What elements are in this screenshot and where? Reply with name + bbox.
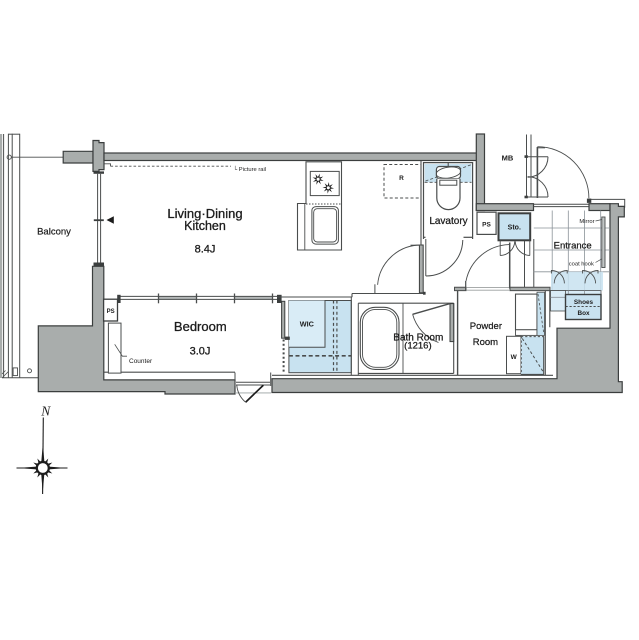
svg-text:Kitchen: Kitchen [184, 219, 226, 233]
svg-text:PS: PS [107, 309, 115, 315]
svg-text:N: N [40, 404, 51, 419]
svg-text:Entrance: Entrance [554, 240, 592, 251]
svg-text:Mirror: Mirror [579, 219, 594, 225]
svg-text:Lavatory: Lavatory [429, 216, 467, 227]
svg-text:W: W [511, 354, 518, 361]
svg-text:R: R [399, 175, 404, 182]
svg-text:Room: Room [473, 337, 498, 348]
svg-text:WIC: WIC [300, 320, 315, 329]
svg-text:Shoes: Shoes [574, 299, 594, 306]
svg-text:PS: PS [482, 222, 491, 229]
svg-text:coat hook: coat hook [569, 261, 594, 267]
svg-text:3.0J: 3.0J [190, 345, 211, 357]
svg-text:MB: MB [502, 154, 514, 163]
svg-text:(1216): (1216) [404, 340, 431, 351]
svg-text:Balcony: Balcony [37, 226, 71, 237]
svg-text:Bedroom: Bedroom [174, 319, 227, 334]
svg-text:Box: Box [577, 310, 590, 317]
svg-text:Sto.: Sto. [508, 224, 521, 231]
svg-text:Powder: Powder [470, 321, 502, 332]
svg-text:└ Picture rail: └ Picture rail [233, 165, 266, 173]
svg-text:Counter: Counter [129, 358, 153, 365]
svg-text:8.4J: 8.4J [195, 243, 216, 255]
